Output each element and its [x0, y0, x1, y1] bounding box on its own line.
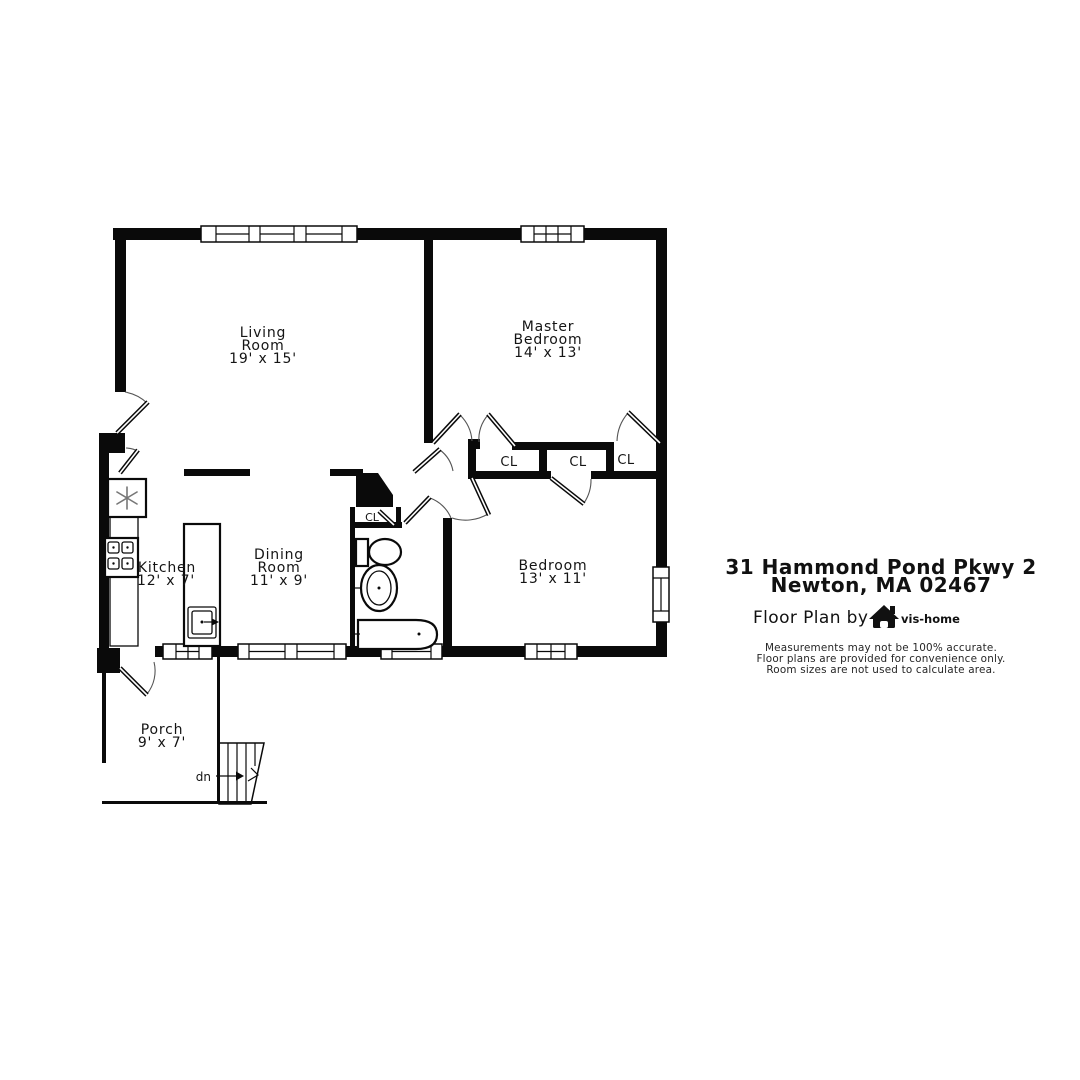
bathroom-sink	[352, 565, 397, 611]
master-bedroom-dims: 14' x 13'	[514, 345, 582, 361]
bedroom-south-window	[525, 644, 577, 659]
dining-room-window	[238, 644, 346, 659]
bedroom-door	[452, 478, 489, 520]
interior-walls	[184, 240, 667, 652]
porch-dims: 9' x 7'	[138, 735, 186, 751]
porch-door	[120, 662, 155, 695]
closet-door-2	[551, 478, 591, 504]
closet-label-3: CL	[617, 453, 635, 468]
bathtub	[352, 620, 437, 649]
disclaimer-line-3: Room sizes are not used to calculate are…	[766, 664, 995, 676]
porch-label: Porch 9' x 7'	[138, 722, 186, 751]
kitchen-label: Kitchen 12' x 7'	[137, 560, 196, 589]
closet-door-1	[479, 414, 515, 446]
stove	[105, 538, 138, 577]
entry-door	[117, 392, 148, 433]
bedroom-dims: 13' x 11'	[519, 571, 587, 587]
closet-door-3	[617, 412, 660, 443]
brand-name: vis-home	[901, 612, 960, 626]
master-bedroom-door	[433, 414, 472, 443]
chimney	[356, 473, 393, 507]
floor-plan-drawing: Living Room 19' x 15' Master Bedroom 14'…	[0, 0, 1080, 1080]
credit-text: Floor Plan by	[753, 608, 868, 628]
dining-room-label: Dining Room 11' x 9'	[250, 547, 308, 589]
master-bedroom-label: Master Bedroom 14' x 13'	[514, 319, 583, 361]
kitchen-dims: 12' x 7'	[137, 573, 195, 589]
bedroom-east-window	[653, 567, 669, 622]
floor-plan-page: Living Room 19' x 15' Master Bedroom 14'…	[0, 0, 1080, 1080]
master-bedroom-window	[521, 226, 584, 242]
closet-label-1: CL	[500, 455, 518, 470]
living-room-dims: 19' x 15'	[229, 351, 297, 367]
stairs-down-label: dn	[196, 770, 211, 784]
porch-stairs	[216, 743, 264, 804]
address-line-2: Newton, MA 02467	[771, 573, 992, 597]
bedroom-label: Bedroom 13' x 11'	[519, 558, 588, 587]
dining-room-dims: 11' x 9'	[250, 573, 308, 589]
kitchen-counter	[110, 517, 138, 646]
vis-home-logo-icon	[869, 605, 899, 628]
living-room-label: Living Room 19' x 15'	[229, 325, 297, 367]
bath-closet-label: CL	[365, 511, 380, 524]
bathroom-fixtures	[352, 539, 437, 649]
info-panel: 31 Hammond Pond Pkwy 2 Newton, MA 02467 …	[725, 555, 1036, 676]
hallway-door	[414, 449, 453, 472]
toilet	[356, 539, 401, 566]
living-room-window	[201, 226, 357, 242]
closet-label-2: CL	[569, 455, 587, 470]
